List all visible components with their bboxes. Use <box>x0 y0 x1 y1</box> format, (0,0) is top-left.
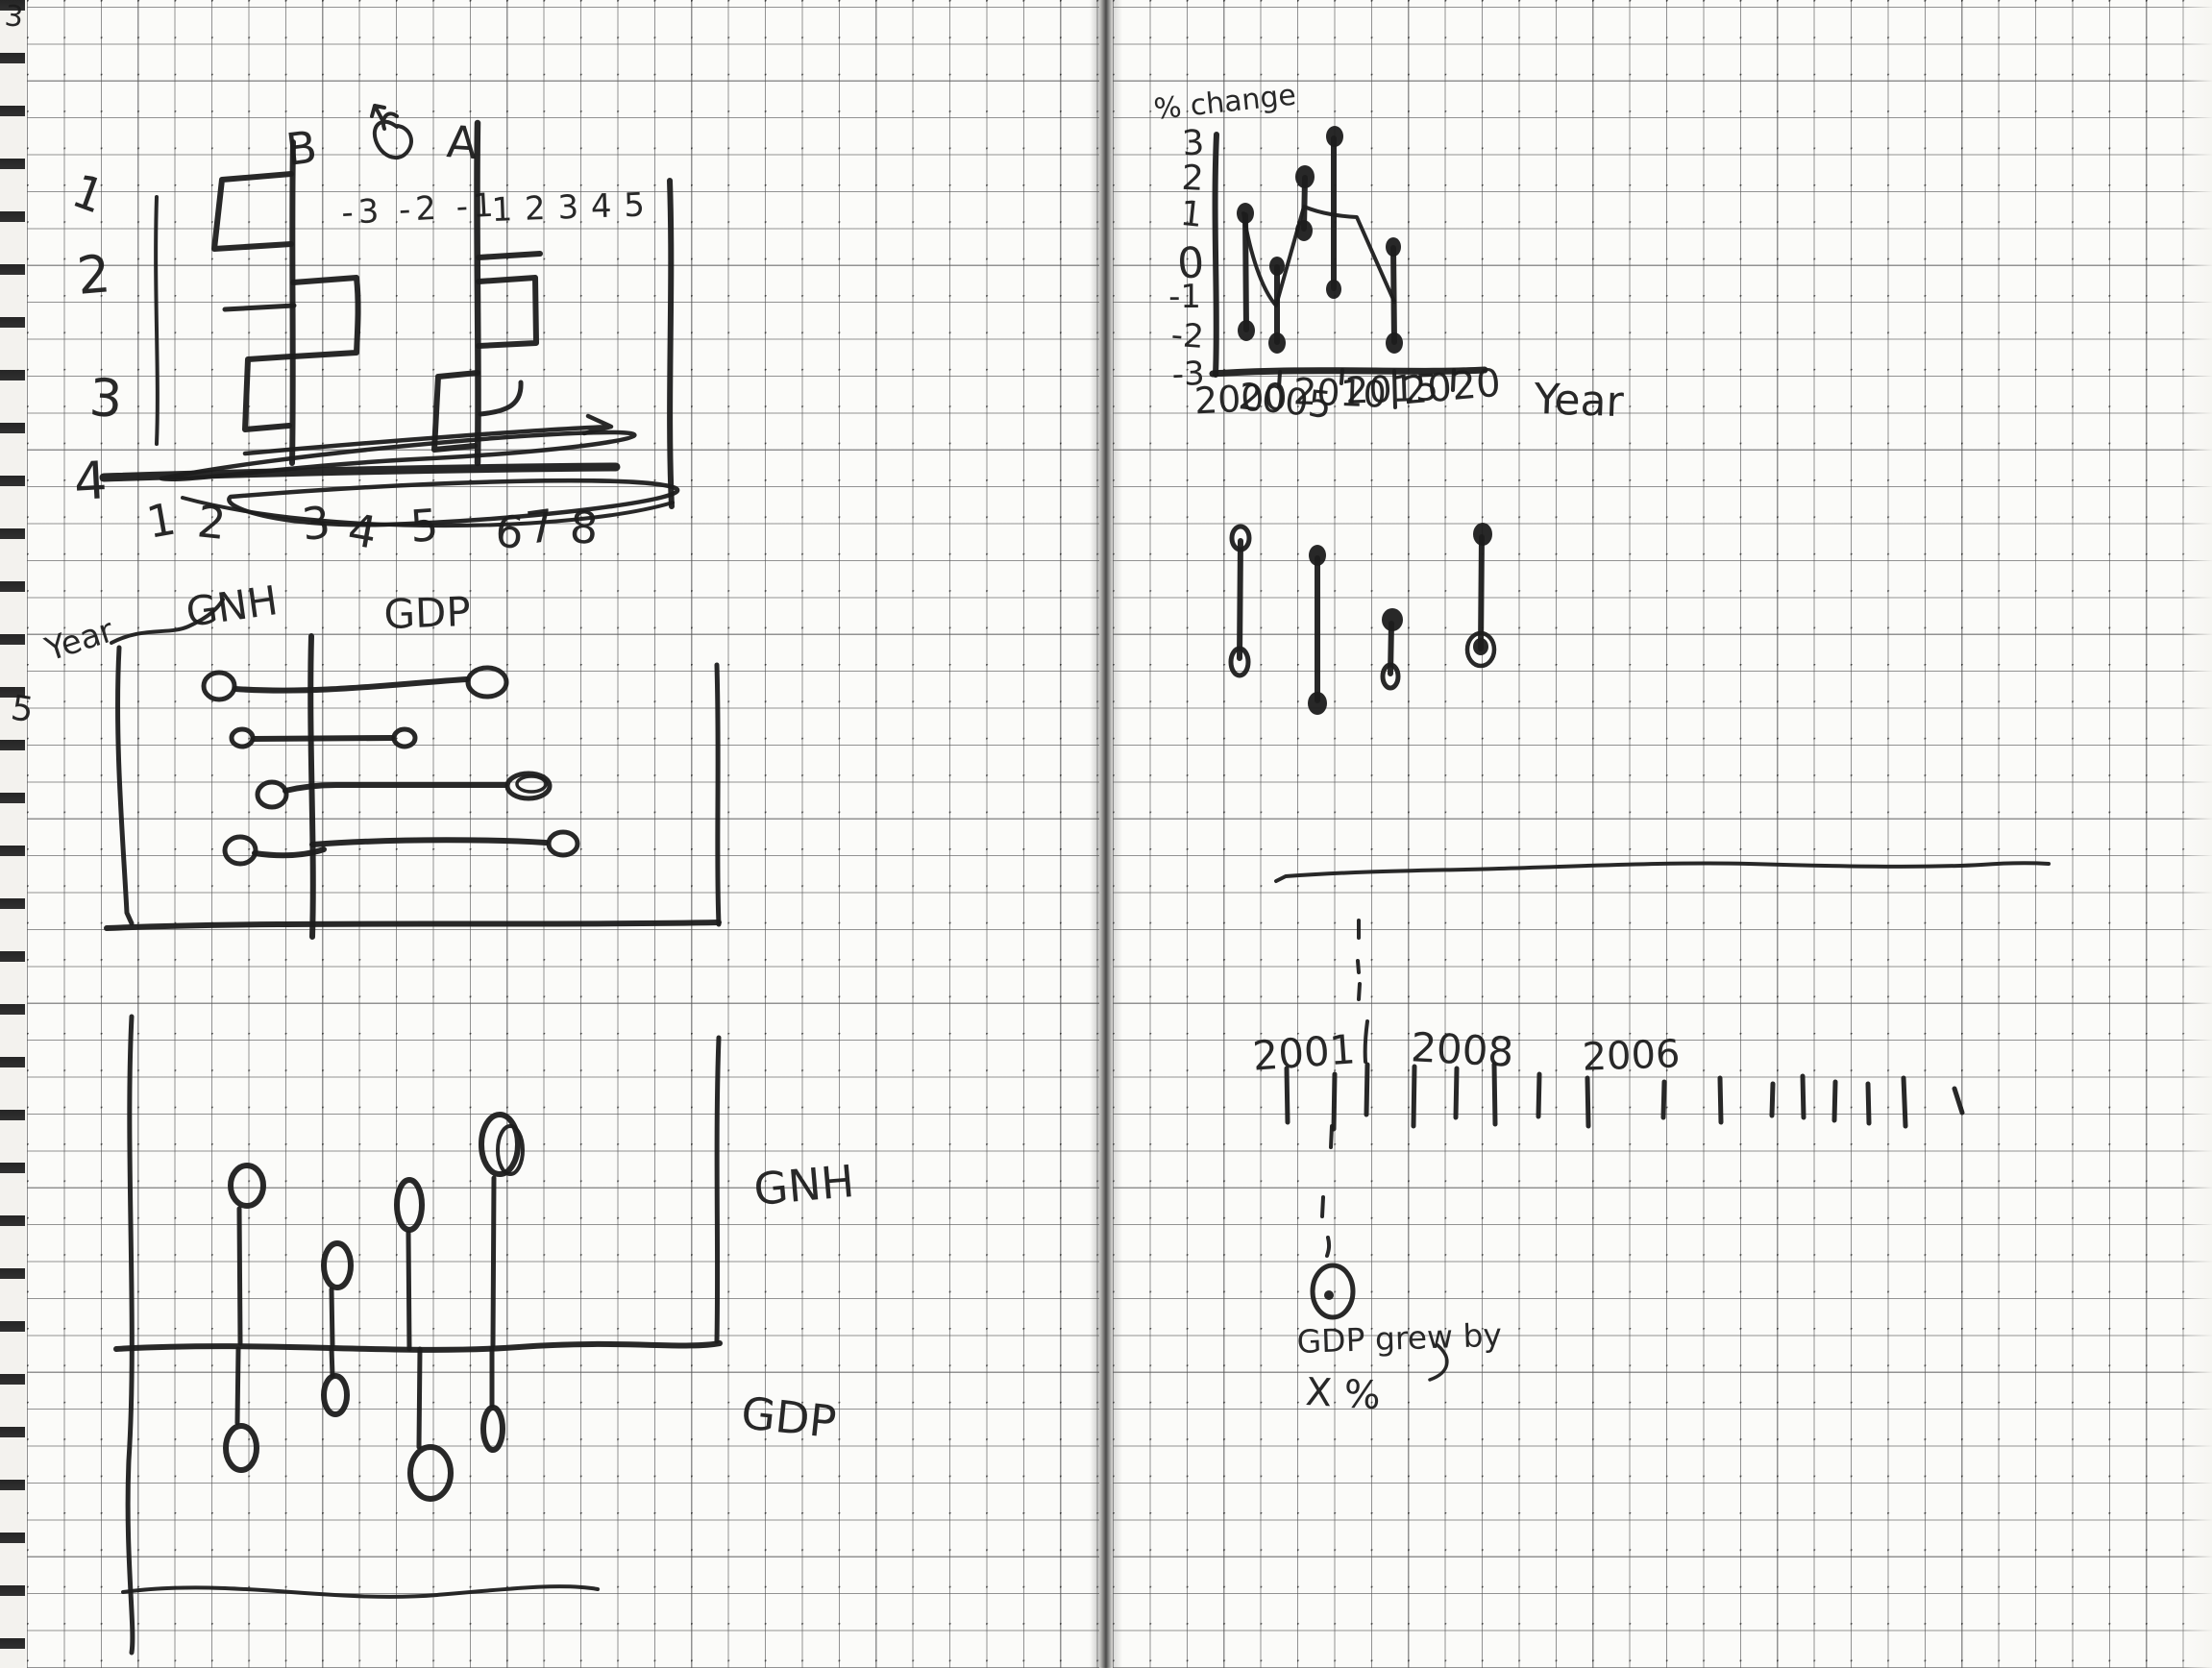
x-tick-2020: 2020 <box>1401 361 1502 414</box>
trend-line <box>1243 207 1394 306</box>
timeline-note-line2: X % <box>1304 1370 1381 1418</box>
lollipop-up-circle-2 <box>324 1243 351 1288</box>
range-dot-2010-low <box>1326 280 1341 299</box>
timeline-year-2008: 2008 <box>1410 1023 1514 1076</box>
dumbbell-right-series-label: GDP <box>383 588 472 638</box>
dumbbell-axis-label: Year <box>39 611 118 670</box>
scribble-doodle <box>372 106 411 158</box>
dumbbell-row1-right-circle <box>468 668 506 697</box>
right-vertical-line <box>670 181 672 506</box>
floating-segment-1 <box>1240 541 1241 658</box>
dumbbell-row2-right-circle <box>394 729 415 747</box>
bottom-number-8: 8 <box>568 501 600 554</box>
dumbbell-row1-line <box>235 679 467 691</box>
lollipop-down-circle-4 <box>483 1408 503 1450</box>
positive-axis-numbers: 1 2 3 4 5 <box>491 185 647 230</box>
floating-segment-3-top-dot <box>1382 608 1403 631</box>
bottom-number-5: 5 <box>408 499 440 552</box>
y-tick-neg2: -2 <box>1170 316 1206 356</box>
range-dot-2015-low <box>1386 332 1403 354</box>
timeline-callout-circle-center-dot <box>1324 1290 1334 1300</box>
lollipop-down-circle-3 <box>410 1447 451 1499</box>
floating-segment-2-top-dot <box>1309 545 1326 566</box>
dumbbell-baseline <box>107 922 719 928</box>
bottom-number-2: 2 <box>195 495 229 550</box>
timeline-year-2001: 2001 <box>1251 1025 1357 1079</box>
dumbbell-row4-left-circle <box>225 837 256 864</box>
lollipop-lower-label: GDP <box>739 1386 839 1448</box>
bar-a-hook <box>480 382 521 414</box>
margin-row-number-2: 2 <box>75 243 113 307</box>
y-tick-1: 1 <box>1178 194 1204 235</box>
dumbbell-chart: Year GNH GDP <box>39 576 719 937</box>
lollipop-right-border <box>717 1038 719 1341</box>
timeline-note-line1: GDP grew by <box>1296 1316 1503 1361</box>
handwritten-ink-layer: 3 1 2 3 4 5 B A -3 -2 -1 1 2 3 4 5 <box>0 0 2212 1668</box>
y-tick-2: 2 <box>1181 159 1205 199</box>
bar-b-upper-left <box>214 174 291 249</box>
bottom-number-6: 6 <box>493 504 527 559</box>
dumbbell-row1-left-circle <box>204 673 234 699</box>
notebook-scan: 3 1 2 3 4 5 B A -3 -2 -1 1 2 3 4 5 <box>0 0 2212 1668</box>
bar-a-right <box>479 278 536 346</box>
dumbbell-right-border <box>717 665 719 924</box>
lollipop-up-circle-1 <box>231 1165 263 1206</box>
floating-segment-2-bottom-dot <box>1308 692 1327 715</box>
bar-a-top-line <box>479 254 540 258</box>
margin-mark: 5 <box>9 688 37 730</box>
bar-b-lower-left <box>245 356 291 429</box>
lollipop-bottom-wave <box>123 1586 598 1597</box>
range-bar-2015 <box>1393 248 1394 342</box>
range-dot-2000-low <box>1238 320 1255 341</box>
range-chart-y-axis <box>1216 135 1217 375</box>
bar-b-right <box>293 278 358 356</box>
lollipop-left-axis <box>128 1017 133 1653</box>
bottom-number-3: 3 <box>300 496 333 551</box>
margin-row-number-3: 3 <box>87 367 124 429</box>
range-dot-2015-high <box>1386 237 1401 257</box>
x-axis-title: Year <box>1533 375 1626 427</box>
lollipop-upper-label: GNH <box>751 1155 856 1215</box>
dumbbell-left-series-label: GNH <box>184 576 281 636</box>
lollipop-down-circle-1 <box>226 1426 257 1470</box>
dumbbell-row4-line <box>255 840 546 855</box>
bottom-number-7: 7 <box>523 499 558 554</box>
dumbbell-row3-left-circle <box>258 782 286 807</box>
timeline-year-2006: 2006 <box>1582 1032 1681 1080</box>
range-dot-2004-high <box>1269 257 1285 276</box>
floating-segment-4-top-dot <box>1473 523 1492 546</box>
timeline: 2001 2008 2006 GDP grew by X % <box>1251 920 1962 1418</box>
corner-mark: 3 <box>3 0 25 35</box>
floating-segment-4-bottom-dot <box>1473 638 1488 655</box>
axis-b-line <box>292 142 293 463</box>
range-dot-2004-low <box>1268 332 1286 354</box>
lollipop-down-circle-2 <box>324 1376 347 1414</box>
lollipop-up-circle-3 <box>397 1180 422 1230</box>
timeline-callout-circle <box>1313 1265 1353 1317</box>
margin-row-number-1: 1 <box>65 164 111 225</box>
lollipop-stems-above <box>239 1178 494 1349</box>
timeline-dashed-callout-line <box>1322 920 1367 1256</box>
floating-ranges <box>1231 523 1494 715</box>
long-horizontal-line <box>1276 863 2049 881</box>
bottom-number-4: 4 <box>344 503 381 559</box>
y-axis-title: % change <box>1152 79 1297 127</box>
range-dot-2007-high <box>1295 165 1315 188</box>
left-guide-line <box>156 197 158 444</box>
dumbbell-row3-right-circle-inner <box>517 776 546 792</box>
lollipop-stems-below <box>237 1348 492 1447</box>
dumbbell-row2-line <box>254 738 392 739</box>
dumbbell-row4-right-circle <box>549 832 578 855</box>
dumbbell-row2-left-circle <box>232 729 253 747</box>
pyramid-sketch: B A -3 -2 -1 1 2 3 4 5 1 2 3 <box>104 106 677 559</box>
bottom-number-1: 1 <box>143 493 180 549</box>
lollipop-chart: GNH GDP <box>116 1017 856 1653</box>
range-dot-2010-high <box>1326 126 1343 147</box>
range-line-chart: % change 3 2 1 0 -1 -2 -3 <box>1152 79 1625 428</box>
bar-b-cross-tick <box>225 306 294 309</box>
y-tick-neg1: -1 <box>1168 278 1201 316</box>
axis-a-line <box>477 123 478 463</box>
dumbbell-row3-line <box>285 785 505 791</box>
axis-b-label: B <box>283 120 320 175</box>
dumbbell-left-axis <box>118 648 132 923</box>
